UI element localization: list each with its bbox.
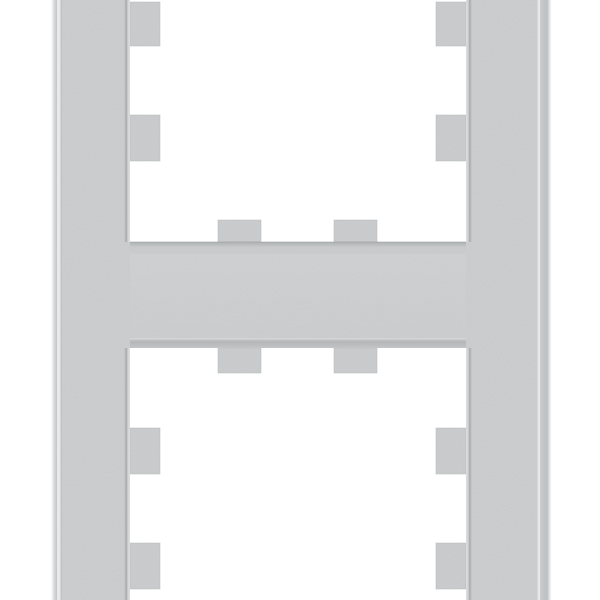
outer-edge-right-highlight: [538, 0, 541, 600]
mounting-tab-o1-right-upper: [436, 2, 466, 46]
mounting-tab-o1-bottom-left: [218, 220, 261, 242]
inner-chamfer-right-o1: [466, 0, 472, 242]
outer-edge-right-bevel: [540, 0, 547, 600]
product-photo: [0, 0, 600, 600]
mounting-tab-o2-right-lower: [436, 543, 466, 589]
outer-edge-left-soft: [51, 0, 57, 600]
mounting-tab-o1-left-lower: [130, 115, 160, 161]
inner-chamfer-top-o2: [130, 338, 466, 348]
outer-edge-left-darkline: [61, 0, 62, 600]
mounting-tab-o1-left-upper: [130, 2, 160, 46]
crossbar-sheen: [130, 254, 466, 338]
outer-edge-right-soft: [548, 0, 552, 600]
mounting-tab-o1-right-lower: [436, 115, 466, 161]
inner-chamfer-right-o2: [466, 348, 472, 600]
inner-chamfer-bottom-o1-line: [130, 241, 466, 243]
mounting-tab-o2-top-right: [334, 348, 377, 373]
mounting-tab-o1-bottom-right: [334, 220, 377, 242]
mounting-tab-o2-left-lower: [130, 543, 160, 589]
mounting-tab-o2-right-upper: [436, 428, 466, 474]
inner-chamfer-bottom-o1: [130, 242, 466, 254]
inner-chamfer-left-o1: [125, 0, 131, 242]
outer-edge-left-highlight: [57, 0, 61, 600]
mounting-tab-o2-left-upper: [130, 428, 160, 474]
inner-chamfer-left-o2: [125, 348, 131, 600]
mounting-tab-o2-top-left: [218, 348, 261, 373]
